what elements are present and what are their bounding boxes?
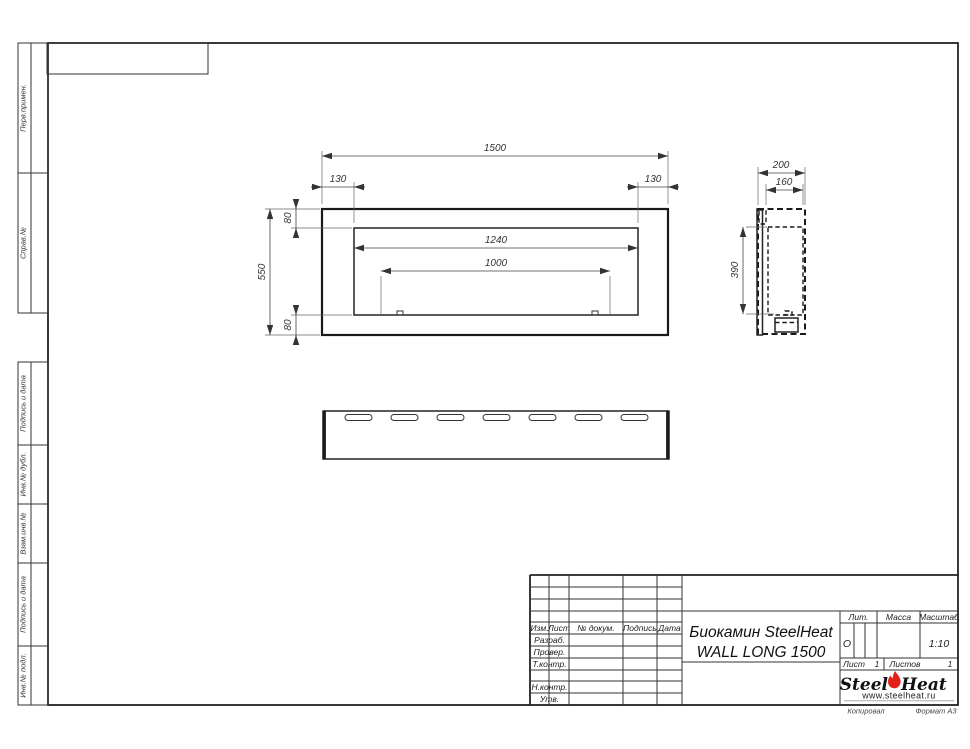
top-left-designation-box <box>47 43 208 74</box>
burner-box-profile <box>775 318 798 332</box>
dim-side-inner-height: 390 <box>730 261 741 278</box>
dim-front-total-width: 1500 <box>484 143 507 154</box>
dim-front-total-height: 550 <box>257 263 268 280</box>
dim-front-bottom-inset: 80 <box>283 319 294 331</box>
drawing-sheet: Перв.примен. Справ.№ Подпись и дата Инв.… <box>0 0 970 749</box>
vent-slot <box>483 415 510 421</box>
product-name-line2: WALL LONG 1500 <box>697 644 826 661</box>
sheet-label: Лист <box>842 659 865 669</box>
margin-label-perv-primen: Перв.примен. <box>19 84 28 132</box>
side-view: 200 160 390 <box>730 160 805 335</box>
combustion-chamber-hidden <box>768 227 803 315</box>
margin-label-sprav-no: Справ.№ <box>19 227 28 259</box>
margin-label-podpis-data-1: Подпись и дата <box>19 375 28 432</box>
lit-label: Лит. <box>848 612 869 622</box>
col-izm: Изм. <box>530 623 548 633</box>
row-razrab: Разраб. <box>534 635 565 645</box>
row-utv: Утв. <box>539 694 559 704</box>
sheets-value: 1 <box>948 659 953 669</box>
format-label: Формат А3 <box>915 707 957 716</box>
vent-slot <box>391 415 418 421</box>
vent-slot <box>437 415 464 421</box>
vent-slot <box>575 415 602 421</box>
row-prover: Провер. <box>534 647 566 657</box>
col-date: Дата <box>657 623 681 633</box>
lit-value: О <box>843 638 851 650</box>
margin-label-podpis-data-2: Подпись и дата <box>19 576 28 633</box>
dim-front-opening-width: 1240 <box>485 235 508 246</box>
product-name-line1: Биокамин SteelHeat <box>689 624 833 641</box>
margin-label-inv-podl: Инв.№ подл. <box>19 653 28 697</box>
dim-front-top-inset: 80 <box>283 212 294 224</box>
dim-front-burner-width: 1000 <box>485 258 508 269</box>
steelheat-logo: Steel Heat www.steelheat.ru <box>840 671 954 701</box>
vent-slot <box>345 415 372 421</box>
dim-side-depth: 200 <box>772 160 790 171</box>
front-view: 1500 130 130 80 550 80 1240 <box>257 143 679 344</box>
scale-label: Масштаб <box>919 612 960 622</box>
dim-front-left-inset: 130 <box>330 174 347 185</box>
sheets-label: Листов <box>889 659 922 669</box>
margin-label-inv-dubl: Инв.№ дубл. <box>19 452 28 496</box>
mass-label: Масса <box>886 612 911 622</box>
vent-slot <box>529 415 556 421</box>
scale-value: 1:10 <box>929 638 950 650</box>
sheet-value: 1 <box>875 659 880 669</box>
col-doc: № докум. <box>577 623 614 633</box>
col-sign: Подпись <box>623 623 657 633</box>
col-list: Лист <box>547 623 570 633</box>
flame-icon <box>888 671 901 688</box>
drawing-canvas: Перв.примен. Справ.№ Подпись и дата Инв.… <box>0 0 970 749</box>
dim-front-right-inset: 130 <box>645 174 662 185</box>
copied-label: Копировал <box>847 707 885 716</box>
vent-slot <box>621 415 648 421</box>
logo-website: www.steelheat.ru <box>861 691 935 701</box>
title-block: Изм. Лист № докум. Подпись Дата Разраб. … <box>530 575 960 716</box>
bottom-view <box>323 411 669 459</box>
margin-label-vzam-inv: Взам.инв.№ <box>19 512 28 554</box>
row-tkontr: Т.контр. <box>532 659 566 669</box>
dim-side-inner-depth: 160 <box>776 177 793 188</box>
row-nkontr: Н.контр. <box>532 682 568 692</box>
margin-column: Перв.примен. Справ.№ Подпись и дата Инв.… <box>18 43 48 705</box>
